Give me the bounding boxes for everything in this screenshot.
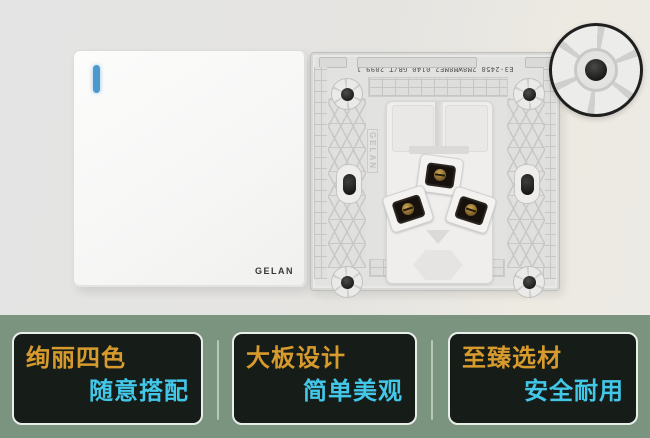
feature-title: 大板设计: [246, 344, 403, 372]
mount-slot: [357, 57, 477, 68]
feature-card-design: 大板设计 简单美观: [232, 332, 417, 425]
feature-card-colors: 绚丽四色 随意搭配: [12, 332, 203, 425]
module-crossbar: [409, 146, 469, 154]
screw-hole: [523, 276, 536, 289]
screw-hole: [341, 88, 354, 101]
module-recess: [445, 105, 488, 152]
terminal-screw: [463, 202, 478, 217]
feature-subtitle: 安全耐用: [462, 377, 624, 405]
triangle-notch: [426, 230, 450, 244]
screw-boss: [513, 78, 545, 110]
feature-subtitle: 简单美观: [246, 377, 403, 405]
hexagon-boss: [413, 250, 463, 280]
feature-title: 绚丽四色: [26, 344, 189, 372]
feature-subtitle: 随意搭配: [26, 377, 189, 405]
led-indicator-bar: [93, 65, 100, 93]
screw-hole: [341, 276, 354, 289]
mounting-oval: [336, 164, 362, 204]
card-separator: [431, 340, 433, 420]
screw-boss-detail: [574, 48, 618, 92]
screw-boss: [331, 266, 363, 298]
screw-hole-detail: [585, 59, 607, 81]
product-showcase: GELAN E3-2458 2M8WM8ME2 0140 GB/T 2099.1…: [0, 0, 650, 315]
socket-mechanism-module: [386, 101, 493, 284]
screw-boss: [513, 266, 545, 298]
switch-panel-front: GELAN: [73, 50, 307, 287]
molding-cells-left-edge: [314, 67, 327, 279]
screw-hole: [523, 88, 536, 101]
terminal-screw: [433, 168, 447, 182]
screw-boss: [331, 78, 363, 110]
feature-title: 至臻选材: [462, 344, 624, 372]
product-banner: GELAN E3-2458 2M8WM8ME2 0140 GB/T 2099.1…: [0, 0, 650, 438]
oval-hole: [343, 174, 356, 195]
mounting-oval: [514, 164, 540, 204]
terminal-opening: [424, 162, 456, 189]
wire-terminal-right: [444, 185, 498, 235]
brand-logo: GELAN: [255, 266, 294, 276]
terminal-opening: [391, 194, 426, 225]
oval-hole: [521, 174, 534, 195]
vent-grid-top: [368, 77, 508, 97]
detail-magnifier-circle: [549, 23, 643, 117]
terminal-screw: [400, 201, 415, 216]
terminal-opening: [454, 195, 489, 226]
socket-panel-back: E3-2458 2M8WM8ME2 0140 GB/T 2099.1 GELAN: [310, 52, 560, 291]
module-recess: [392, 105, 434, 152]
card-separator: [217, 340, 219, 420]
brand-logo-embossed: GELAN: [367, 129, 378, 173]
feature-band: 绚丽四色 随意搭配 大板设计 简单美观 至臻选材 安全耐用: [0, 315, 650, 438]
feature-card-material: 至臻选材 安全耐用: [448, 332, 638, 425]
